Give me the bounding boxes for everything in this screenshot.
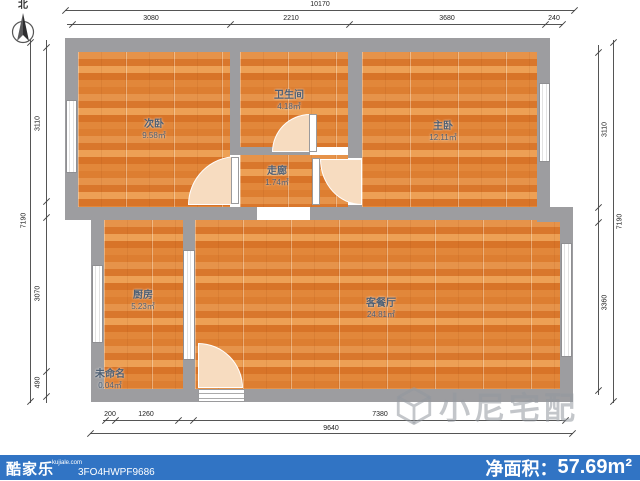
dim-label-segment: 3110	[34, 104, 43, 144]
wall-step-right	[537, 207, 573, 222]
room-name: 客餐厅	[341, 298, 421, 310]
dim-label-total: 7190	[616, 202, 625, 242]
dim-line	[613, 40, 614, 403]
entry-door	[198, 389, 245, 402]
watermark-cube-icon	[393, 385, 435, 427]
dim-label-segment: 3680	[422, 15, 472, 23]
room-area: 1.74㎡	[237, 178, 317, 188]
room-name: 卫生间	[249, 90, 329, 102]
dim-label-segment: 3360	[601, 283, 610, 323]
room-label-bedroom2: 次卧 9.58㎡	[114, 119, 194, 141]
watermark: 小尼宅配	[393, 383, 579, 428]
room-area: 9.58㎡	[114, 131, 194, 141]
floorplan-page: { "north": {"label": "北"}, "rooms": [ {"…	[0, 0, 640, 480]
room-name: 厨房	[103, 290, 183, 302]
dim-label-segment: 2210	[266, 15, 316, 23]
dim-line	[90, 433, 573, 434]
net-area: 净面积： 57.69m²	[486, 455, 633, 480]
room-name: 次卧	[114, 119, 194, 131]
north-label: 北	[8, 1, 38, 11]
dim-tick	[571, 7, 578, 14]
room-area: 24.81㎡	[341, 310, 421, 320]
dim-tick	[569, 430, 576, 437]
dim-label-segment: 1260	[121, 411, 171, 419]
window-living	[561, 243, 572, 357]
north-compass-icon	[9, 11, 37, 45]
dim-label-segment: 3110	[601, 110, 610, 150]
room-label-unnamed: 未命名 0.04㎡	[70, 369, 150, 391]
window-master-bedroom	[539, 83, 550, 162]
room-area: 12.11㎡	[403, 133, 483, 143]
dim-label-segment: 3070	[34, 274, 43, 314]
bath-door-leaf	[309, 114, 317, 152]
dim-line	[30, 40, 31, 403]
dim-label-total: 9640	[306, 425, 356, 433]
room-label-kitchen: 厨房 5.23㎡	[103, 290, 183, 312]
room-name: 未命名	[70, 369, 150, 381]
plan-code: 3FO4HWPF9686	[78, 467, 155, 478]
wall-top	[65, 38, 550, 52]
dim-line	[46, 40, 47, 403]
kitchen-sliding-door	[183, 250, 195, 360]
room-name: 走廊	[237, 166, 317, 178]
room-name: 主卧	[403, 121, 483, 133]
net-area-value: 57.69m²	[558, 456, 633, 479]
wall-bedroom2-bath	[230, 52, 240, 155]
window-kitchen	[92, 265, 103, 343]
room-area: 5.23㎡	[103, 302, 183, 312]
north-indicator: 北	[8, 1, 38, 50]
window-bedroom2	[66, 100, 77, 173]
footer-bar: 酷家乐 kujiale.com 3FO4HWPF9686 净面积： 57.69m…	[0, 455, 640, 480]
room-label-bathroom: 卫生间 4.18㎡	[249, 90, 329, 112]
dim-tick	[610, 398, 617, 405]
room-area: 0.04㎡	[70, 381, 150, 391]
dim-line	[67, 24, 563, 25]
dim-label-total: 10170	[295, 1, 345, 9]
room-label-corridor: 走廊 1.74㎡	[237, 166, 317, 188]
dim-line	[65, 10, 575, 11]
watermark-text: 小尼宅配	[439, 383, 579, 428]
corridor-passage-opening	[257, 207, 310, 220]
room-label-master-bedroom: 主卧 12.11㎡	[403, 121, 483, 143]
room-label-living-dining: 客餐厅 24.81㎡	[341, 298, 421, 320]
dim-label-segment: 3080	[126, 15, 176, 23]
dim-label-total: 7190	[20, 201, 29, 241]
kujiale-logo: 酷家乐	[6, 458, 54, 479]
dim-label-segment: 490	[34, 363, 43, 403]
brand-domain: kujiale.com	[52, 460, 82, 466]
room-area: 4.18㎡	[249, 102, 329, 112]
dim-label-segment: 240	[529, 15, 579, 23]
net-area-label: 净面积：	[486, 455, 558, 481]
